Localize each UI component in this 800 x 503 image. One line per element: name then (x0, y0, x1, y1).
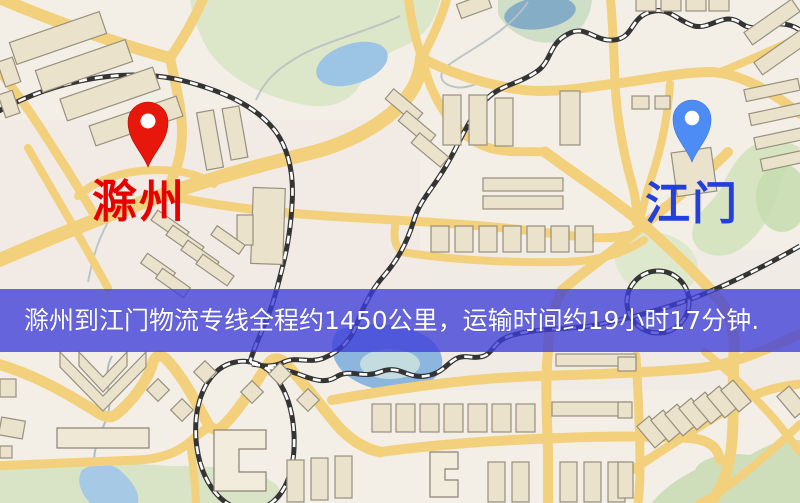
route-info-banner: 滁州到江门物流专线全程约1450公里，运输时间约19小时17分钟. (0, 289, 800, 352)
origin-city-label: 滁州 (92, 175, 186, 228)
destination-city-label: 江门 (645, 177, 739, 230)
road-map: 滁州 江门 (0, 0, 800, 503)
route-info-text: 滁州到江门物流专线全程约1450公里，运输时间约19小时17分钟. (24, 308, 759, 333)
map-screenshot: 滁州 江门 滁州到江门物流专线全程约1450公里，运输时间约19小时17分钟. (0, 0, 800, 503)
